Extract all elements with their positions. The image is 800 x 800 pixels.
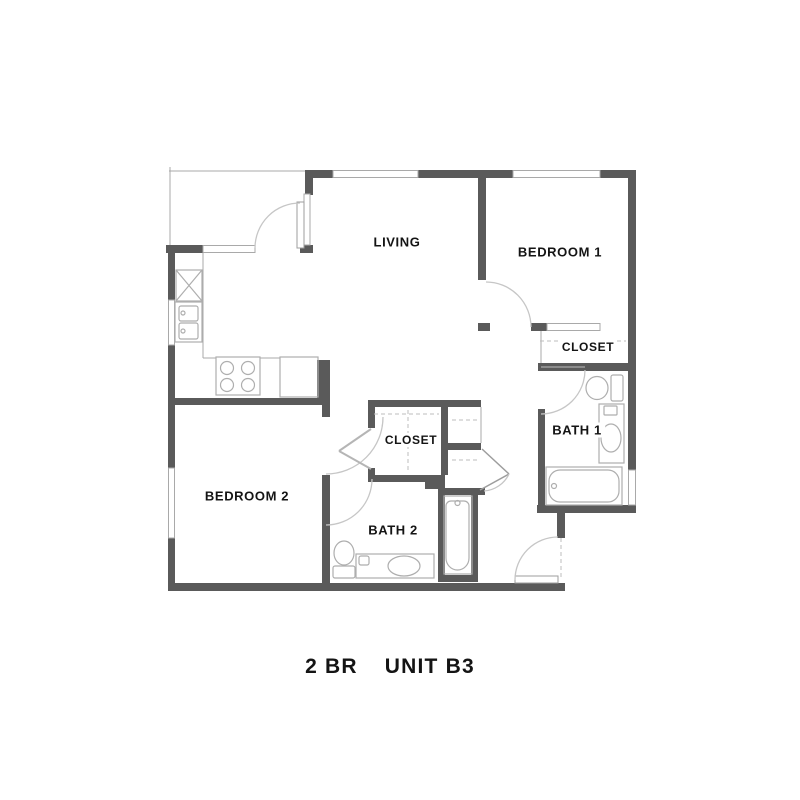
toilet-bath2 xyxy=(333,541,355,578)
bedroom1-label: BEDROOM 1 xyxy=(515,245,605,260)
bath2-label: BATH 2 xyxy=(365,523,421,538)
bath1-door xyxy=(541,367,585,414)
kitchen-side-window xyxy=(169,300,175,345)
plan-title-br: 2 BR xyxy=(305,655,358,679)
floor-plan-drawing xyxy=(0,0,800,800)
plan-title-unit: UNIT B3 xyxy=(385,655,475,679)
bedroom1-closet-label: CLOSET xyxy=(559,340,617,354)
bathtub-bath2 xyxy=(444,496,472,574)
kitchen-front-window xyxy=(203,246,255,253)
toilet-bath1 xyxy=(586,375,623,401)
hall-closet-double-doors xyxy=(339,429,371,469)
living-label: LIVING xyxy=(371,235,424,250)
plan-title: 2 BR UNIT B3 xyxy=(305,655,475,679)
bathtub-bath1 xyxy=(546,467,622,505)
dishwasher-counter xyxy=(280,357,318,397)
entry-door xyxy=(515,537,561,583)
bedroom2-label: BEDROOM 2 xyxy=(202,489,292,504)
refrigerator xyxy=(176,270,202,301)
bedroom1-door xyxy=(486,282,531,327)
bath1-window xyxy=(629,470,636,505)
bath1-label: BATH 1 xyxy=(549,423,605,438)
bath2-door xyxy=(326,479,372,525)
floor-plan: LIVING BEDROOM 1 CLOSET BATH 1 CLOSET BE… xyxy=(0,0,800,800)
hall-closet-label: CLOSET xyxy=(382,433,440,447)
windows xyxy=(169,171,636,539)
porch-side-window xyxy=(304,194,310,245)
bedroom2-window xyxy=(169,468,175,538)
living-window xyxy=(333,171,418,178)
kitchen-double-sink xyxy=(175,302,202,342)
kitchen-fixtures xyxy=(175,270,318,397)
front-door xyxy=(255,202,304,248)
bath1-fixtures xyxy=(546,375,624,505)
stove xyxy=(216,357,260,395)
bedroom1-closet-opening xyxy=(547,324,600,331)
bedroom1-window xyxy=(513,171,600,178)
linen-closet-door xyxy=(480,449,509,491)
vanity-sink-bath2 xyxy=(356,554,434,578)
porch-outline xyxy=(169,167,305,247)
